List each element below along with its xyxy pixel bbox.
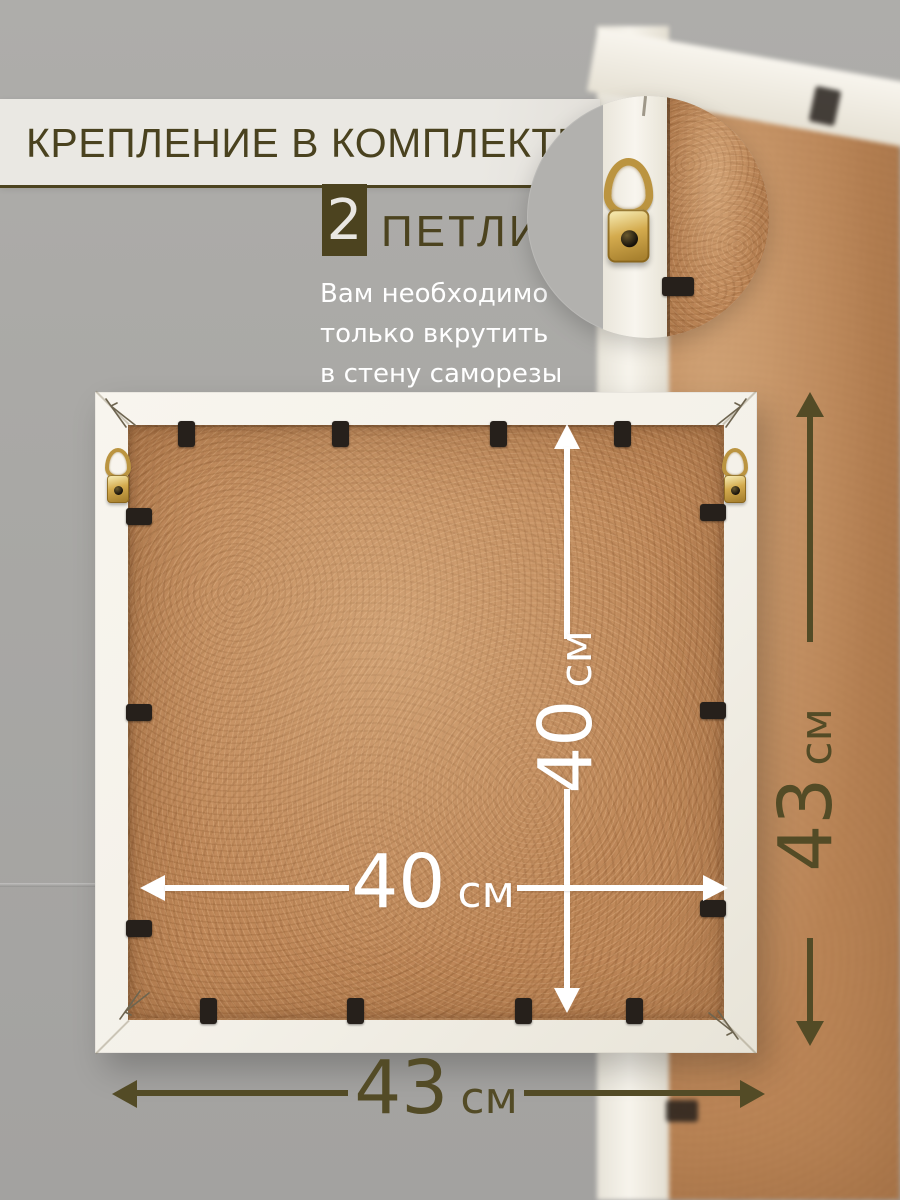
retainer-clip-icon — [662, 277, 694, 296]
retainer-clip-icon — [178, 421, 195, 447]
d-ring-hanger-icon — [600, 158, 657, 264]
dimension-line — [524, 1090, 740, 1096]
retainer-clip-icon — [515, 998, 532, 1024]
product-image: КРЕПЛЕНИЕ В КОМПЛЕКТЕ 2 ПЕТЛИ Вам необхо… — [0, 0, 900, 1200]
dimension-line — [165, 885, 349, 891]
frame-back-photo — [95, 392, 757, 1053]
retainer-clip-icon — [126, 508, 152, 525]
arrow-right-icon — [740, 1080, 765, 1108]
retainer-clip-icon — [700, 504, 726, 521]
retainer-clip-icon — [200, 998, 217, 1024]
dimension-line — [517, 885, 703, 891]
inner-height-label: 40 см — [521, 612, 611, 812]
backdrop-seam-line — [0, 883, 96, 887]
mdf-board — [128, 425, 724, 1020]
arrow-up-icon — [796, 392, 824, 417]
retainer-clip-icon — [700, 702, 726, 719]
retainer-clip-icon — [614, 421, 631, 447]
retainer-clip-icon — [126, 704, 152, 721]
hanger-zoom-inset — [527, 96, 769, 338]
retainer-clip-icon — [626, 998, 643, 1024]
corner-scratch-mark — [103, 397, 139, 429]
hanger-screw — [620, 230, 637, 247]
description-line: Вам необходимо — [320, 274, 562, 314]
page-title: КРЕПЛЕНИЕ В КОМПЛЕКТЕ — [0, 120, 585, 167]
retainer-clip-icon — [666, 1100, 698, 1122]
retainer-clip-icon — [332, 421, 349, 447]
retainer-clip-icon — [490, 421, 507, 447]
hanger-plate — [608, 209, 650, 262]
hanger-ring — [604, 158, 653, 217]
hardware-count-badge: 2 — [322, 184, 367, 256]
arrow-down-icon — [796, 1021, 824, 1046]
d-ring-hanger-icon — [103, 448, 133, 504]
retainer-clip-icon — [347, 998, 364, 1024]
mitre-joint — [95, 1020, 130, 1055]
dimension-line — [807, 416, 813, 642]
dimension-line — [564, 447, 570, 639]
description-line: в стену саморезы — [320, 354, 562, 394]
hanger-screw — [731, 486, 740, 495]
header-divider — [0, 185, 600, 188]
d-ring-hanger-icon — [720, 448, 750, 504]
arrow-left-icon — [140, 875, 165, 901]
hanger-screw — [114, 486, 123, 495]
mounting-description: Вам необходимо только вкрутить в стену с… — [320, 274, 562, 394]
hardware-count: 2 — [327, 188, 363, 253]
arrow-right-icon — [703, 875, 728, 901]
corner-scratch-mark — [713, 397, 749, 429]
hanger-plate — [107, 475, 129, 503]
outer-width-label: 43 см — [336, 1043, 536, 1133]
header-band: КРЕПЛЕНИЕ В КОМПЛЕКТЕ — [0, 99, 600, 187]
hardware-count-label: ПЕТЛИ — [381, 207, 543, 257]
retainer-clip-icon — [126, 920, 152, 937]
dimension-line — [136, 1090, 348, 1096]
description-line: только вкрутить — [320, 314, 562, 354]
arrow-up-icon — [554, 424, 580, 449]
inset-mdf-board — [667, 96, 769, 338]
arrow-left-icon — [112, 1080, 137, 1108]
corner-scratch-mark — [705, 1009, 741, 1041]
retainer-clip-icon — [700, 900, 726, 917]
outer-height-label: 43 см — [761, 690, 851, 890]
dimension-line — [807, 938, 813, 1022]
arrow-down-icon — [554, 988, 580, 1013]
hanger-plate — [724, 475, 746, 503]
corner-scratch-mark — [117, 989, 153, 1021]
inner-width-label: 40 см — [333, 837, 533, 927]
